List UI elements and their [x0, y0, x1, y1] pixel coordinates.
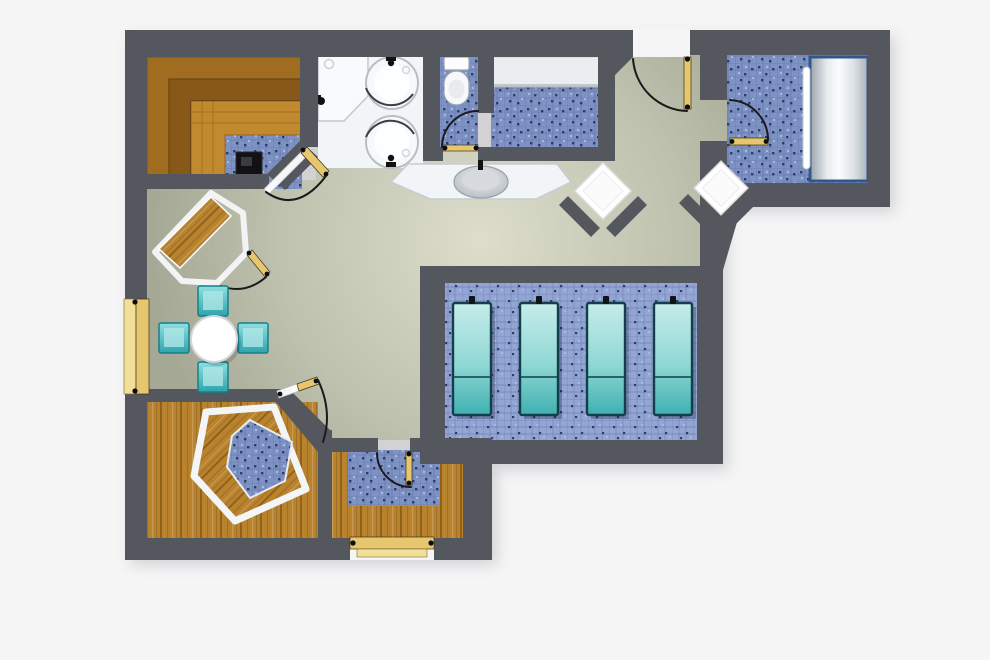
toilet-bowl-inner [449, 80, 465, 99]
changing-bench-shadow [493, 84, 601, 89]
door-hinge [350, 540, 355, 545]
stool-cushion [203, 291, 223, 310]
door-hinge [407, 481, 412, 486]
round-shower-1-basin [374, 65, 410, 101]
door-hinge [730, 139, 735, 144]
bottom-wall [125, 538, 492, 560]
door-hinge [265, 272, 270, 277]
top-wall-left [125, 30, 633, 57]
shower-cabin-top-wall-right [410, 438, 465, 452]
shower-cabin-right-wall [463, 438, 492, 540]
changing-room [491, 55, 603, 161]
lounger-headrest-knob [536, 296, 542, 304]
thermal-bed [810, 57, 868, 181]
door-hinge [301, 148, 306, 153]
terrace-left-wall [420, 268, 445, 444]
thermal-bed-room [727, 55, 868, 185]
door-hinge [247, 251, 252, 256]
bottom-door-leaf [350, 537, 434, 549]
left-door-leaf-inner [136, 299, 149, 394]
sauna-bottom-wall [147, 174, 269, 189]
wc-door-leaf [443, 145, 478, 151]
stool-cushion [243, 328, 263, 347]
left-wall [125, 30, 147, 560]
door-hinge [132, 299, 137, 304]
floor-plan-svg: Spa wellness suite floor plan (top-down … [0, 0, 990, 660]
shower-room [316, 55, 423, 168]
fountain-counter [391, 160, 571, 199]
lounger-headrest-knob [469, 296, 475, 304]
whirlpool-room-right-wall [318, 430, 332, 540]
wc-changing-divider-wall [478, 55, 494, 113]
door-hinge [685, 104, 690, 109]
round-shower-1-faucet-head [388, 60, 394, 66]
round-table [191, 316, 237, 362]
door-hinge [407, 452, 412, 457]
relax-lounger-4 [654, 296, 696, 419]
door-hinge [685, 56, 690, 61]
terrace-right-wall [697, 266, 723, 464]
changing-bottom-wall [478, 147, 605, 161]
thermal-room-door-leaf [730, 138, 768, 145]
shower-cabin-top-wall-left [332, 438, 378, 452]
relax-lounger-1 [453, 296, 495, 419]
thermal-bed-grab-rail [803, 67, 810, 169]
wc-room [440, 55, 478, 148]
toilet-cistern [444, 57, 469, 70]
door-hinge [278, 392, 283, 397]
wc-bottom-wall-left [423, 147, 443, 161]
thermal-room-left-wall-upper [700, 30, 727, 100]
relax-lounger-3 [587, 296, 629, 419]
door-hinge [428, 540, 433, 545]
shower-cabin-door-leaf [406, 452, 412, 485]
lounger-headrest-knob [670, 296, 676, 304]
door-hinge [474, 146, 479, 151]
fountain-basin-inner [462, 170, 500, 191]
round-shower-2-faucet-head [388, 155, 394, 161]
door-hinge [443, 146, 448, 151]
stool-cushion [203, 367, 223, 386]
stool-cushion [164, 328, 184, 347]
bottom-wall-door [350, 537, 434, 560]
lounger-headrest-knob [603, 296, 609, 304]
whirlpool-room [147, 402, 318, 538]
left-door-leaf-outer [124, 299, 136, 394]
left-wall-double-door [124, 299, 149, 394]
sauna-heater-top [241, 157, 252, 166]
changing-bench [493, 57, 601, 87]
bottom-door-threshold [357, 549, 427, 557]
relax-lounger-2 [520, 296, 562, 419]
terrace-step-edge [420, 266, 723, 283]
round-shower-2-basin [374, 124, 410, 160]
round-shower-2-faucet [386, 162, 396, 167]
sauna-right-wall [300, 55, 318, 147]
entrance-door-leaf [684, 57, 691, 109]
door-hinge [132, 388, 137, 393]
fountain-faucet [478, 160, 483, 170]
lounger-terrace [445, 283, 697, 442]
shower-wc-divider-wall [423, 55, 440, 149]
right-wall-thermal-room [868, 30, 890, 207]
floor-plan-canvas: Spa wellness suite floor plan (top-down … [0, 0, 990, 660]
